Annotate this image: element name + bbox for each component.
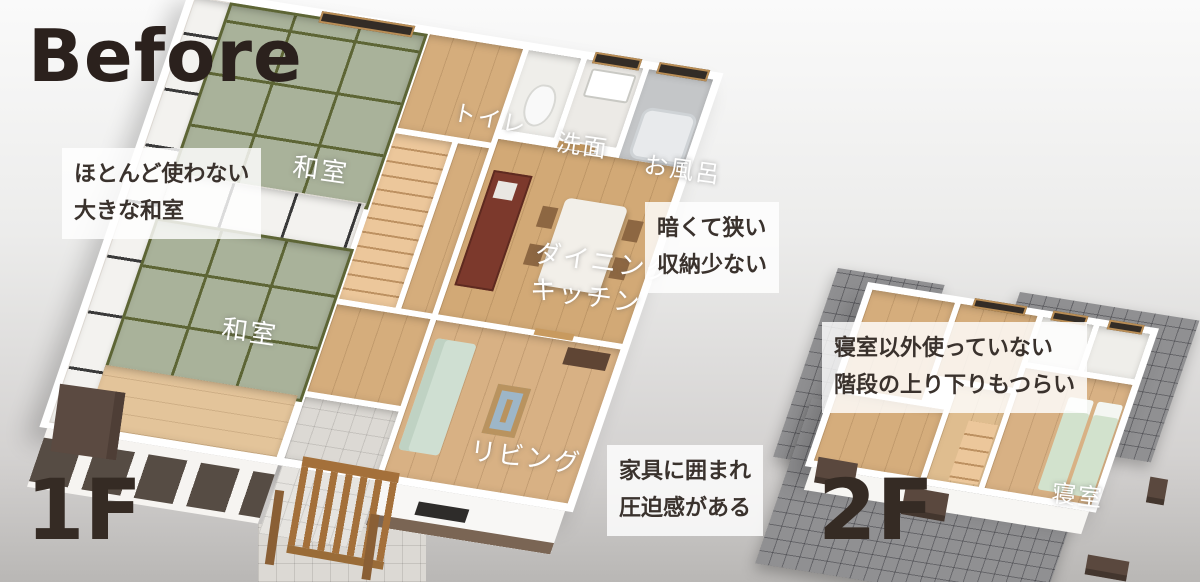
annotation-unused-washitsu: ほとんど使わない 大きな和室 <box>62 148 261 239</box>
room-label-washitsu-lower: 和室 <box>220 308 281 352</box>
entrance-gate <box>286 456 400 570</box>
tv-cabinet <box>562 347 611 371</box>
tv-screen <box>414 502 469 523</box>
annotation-cramped-furniture: 家具に囲まれ 圧迫感がある <box>607 445 763 536</box>
annotation-line: 寝室以外使っていない <box>834 330 1075 367</box>
annotation-line: 収納少ない <box>657 247 767 284</box>
floor-label-2f: 2F <box>818 468 934 552</box>
window <box>656 62 710 81</box>
annotation-stairs-hard: 寝室以外使っていない 階段の上り下りもつらい <box>822 322 1087 413</box>
window <box>318 11 415 37</box>
annotation-line: 大きな和室 <box>74 193 249 230</box>
annotation-line: 暗くて狭い <box>657 210 767 247</box>
dining-chair <box>536 206 559 229</box>
annotation-line: 階段の上り下りもつらい <box>834 367 1075 404</box>
before-renovation-floorplan-view: Before <box>0 0 1200 582</box>
washbasin <box>582 68 636 103</box>
shutter-box <box>1085 555 1130 582</box>
window <box>592 52 642 71</box>
before-title: Before <box>28 14 303 98</box>
living-table <box>481 384 531 438</box>
annotation-line: 家具に囲まれ <box>619 453 751 490</box>
room-label-bedroom: 寝室 <box>1050 473 1105 513</box>
shutter-box <box>1146 477 1168 506</box>
room-label-washroom: 洗面 <box>555 123 611 165</box>
annotation-dark-narrow: 暗くて狭い 収納少ない <box>645 202 779 293</box>
floor-label-1f: 1F <box>26 468 142 552</box>
room-label-washitsu-upper: 和室 <box>291 146 352 190</box>
annotation-line: ほとんど使わない <box>74 156 249 193</box>
kitchen-sink <box>493 181 518 201</box>
dining-chair <box>621 219 644 242</box>
outdoor-cabinet <box>51 384 126 461</box>
annotation-line: 圧迫感がある <box>619 490 751 527</box>
